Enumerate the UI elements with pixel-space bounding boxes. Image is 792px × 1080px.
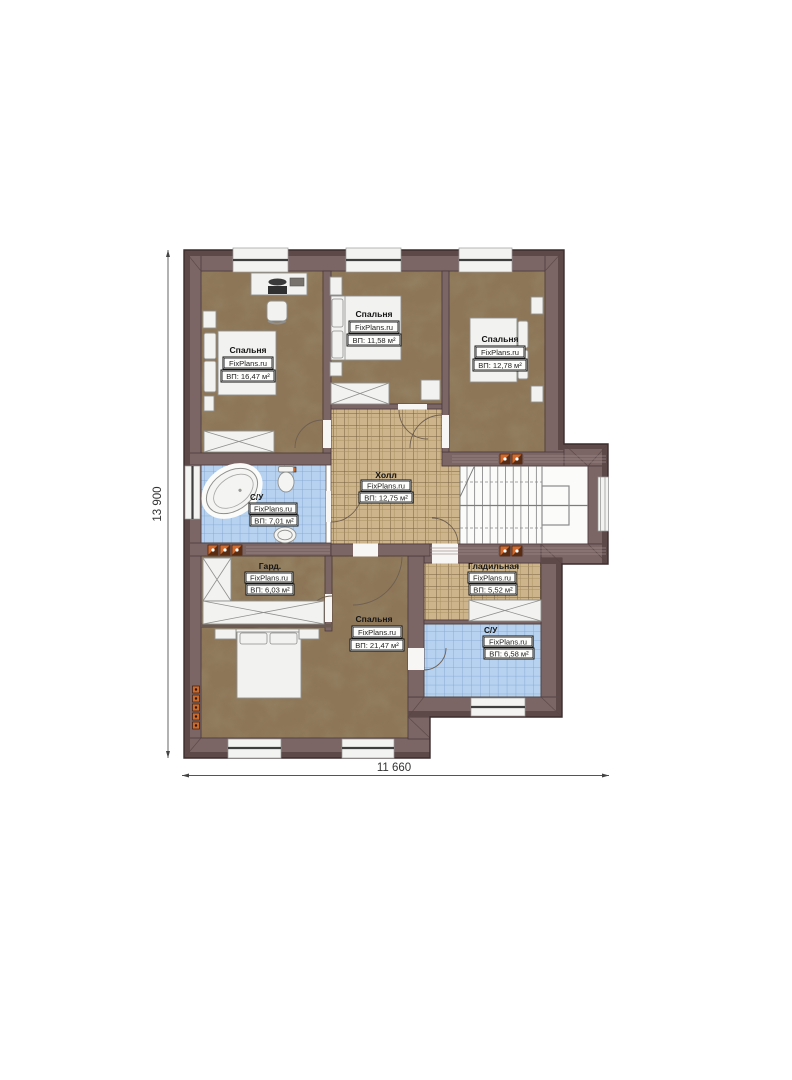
svg-text:ВП: 7,01 м²: ВП: 7,01 м² [254,516,294,525]
svg-text:FixPlans.ru: FixPlans.ru [355,323,393,332]
svg-text:Холл: Холл [375,470,397,480]
svg-text:FixPlans.ru: FixPlans.ru [250,573,288,582]
svg-text:ВП: 5,52 м²: ВП: 5,52 м² [473,585,513,594]
svg-text:Спальня: Спальня [229,345,266,355]
svg-text:ВП: 12,78 м²: ВП: 12,78 м² [478,361,522,370]
svg-text:FixPlans.ru: FixPlans.ru [358,628,396,637]
svg-text:ВП: 6,03 м²: ВП: 6,03 м² [250,585,290,594]
svg-text:FixPlans.ru: FixPlans.ru [473,573,511,582]
svg-text:ВП: 12,75 м²: ВП: 12,75 м² [364,493,408,502]
svg-text:С/У: С/У [484,626,498,635]
svg-text:11 660: 11 660 [377,762,411,774]
svg-text:FixPlans.ru: FixPlans.ru [489,637,527,646]
svg-text:Спальня: Спальня [355,309,392,319]
svg-text:FixPlans.ru: FixPlans.ru [254,504,292,513]
svg-text:13 900: 13 900 [152,486,164,521]
svg-text:Гладильная: Гладильная [468,561,519,571]
svg-text:FixPlans.ru: FixPlans.ru [481,348,519,357]
svg-text:Гард.: Гард. [259,561,281,571]
svg-text:Спальня: Спальня [481,334,518,344]
svg-text:ВП: 11,58 м²: ВП: 11,58 м² [352,336,396,345]
svg-text:FixPlans.ru: FixPlans.ru [367,481,405,490]
svg-text:ВП: 6,58 м²: ВП: 6,58 м² [489,649,529,658]
svg-text:С/У: С/У [250,493,264,502]
svg-text:ВП: 16,47 м²: ВП: 16,47 м² [226,372,270,381]
svg-text:FixPlans.ru: FixPlans.ru [229,359,267,368]
svg-text:Спальня: Спальня [355,614,392,624]
svg-text:ВП: 21,47 м²: ВП: 21,47 м² [355,641,399,650]
